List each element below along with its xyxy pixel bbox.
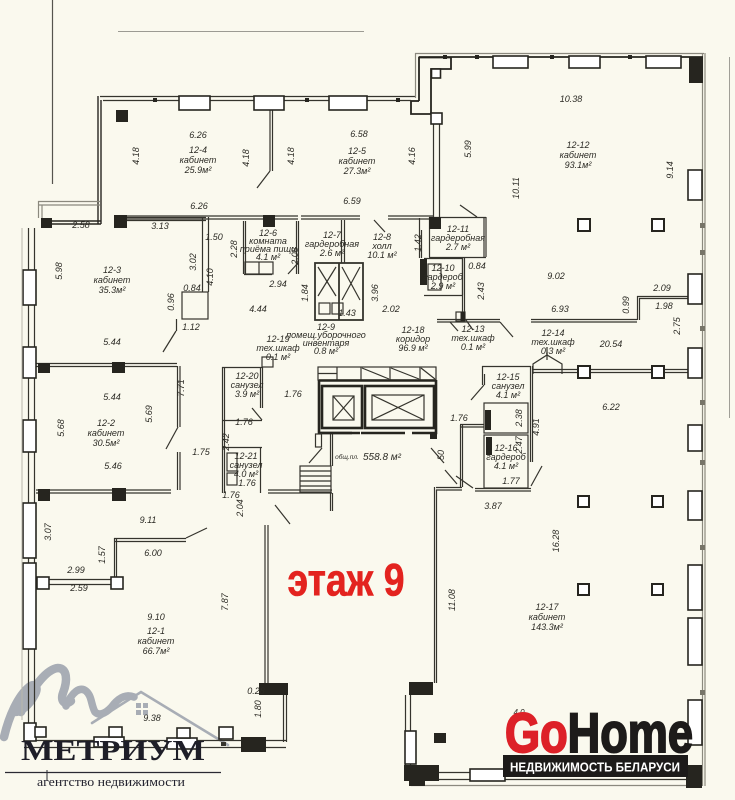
svg-text:5.69: 5.69 <box>144 405 154 423</box>
svg-text:12-3: 12-3 <box>103 265 121 275</box>
svg-text:2.38: 2.38 <box>514 409 524 428</box>
svg-text:кабинет: кабинет <box>138 636 175 646</box>
svg-text:6.58: 6.58 <box>350 129 368 139</box>
svg-text:93.1м²: 93.1м² <box>565 160 593 170</box>
svg-text:1.12: 1.12 <box>182 322 200 332</box>
svg-text:1.80: 1.80 <box>253 700 263 718</box>
svg-text:10.11: 10.11 <box>511 177 521 199</box>
svg-text:50: 50 <box>436 450 446 460</box>
svg-text:6.59: 6.59 <box>343 196 361 206</box>
svg-text:12-5: 12-5 <box>348 146 367 156</box>
svg-text:3.96: 3.96 <box>370 284 380 302</box>
svg-text:16.28: 16.28 <box>551 530 561 553</box>
svg-text:143.3м²: 143.3м² <box>531 622 564 632</box>
svg-text:2.28: 2.28 <box>229 240 239 259</box>
svg-text:5.68: 5.68 <box>56 419 66 437</box>
svg-text:НЕДВИЖИМОСТЬ БЕЛАРУСИ: НЕДВИЖИМОСТЬ БЕЛАРУСИ <box>510 761 680 775</box>
svg-text:12-2: 12-2 <box>97 418 115 428</box>
svg-text:2.47: 2.47 <box>514 435 524 455</box>
svg-text:4.91: 4.91 <box>531 418 541 436</box>
svg-text:2.02: 2.02 <box>381 304 400 314</box>
svg-text:0.84: 0.84 <box>468 261 486 271</box>
svg-text:10.38: 10.38 <box>560 94 583 104</box>
svg-text:27.3м²: 27.3м² <box>343 166 372 176</box>
svg-text:3.87: 3.87 <box>484 501 503 511</box>
svg-text:0.99: 0.99 <box>621 296 631 314</box>
svg-text:общ.пл.: общ.пл. <box>335 453 359 461</box>
svg-text:3.9 м²: 3.9 м² <box>235 389 260 399</box>
svg-text:6.22: 6.22 <box>602 402 620 412</box>
svg-text:9.38: 9.38 <box>143 713 161 723</box>
svg-text:12-1: 12-1 <box>147 626 165 636</box>
svg-text:МЕТРИУМ: МЕТРИУМ <box>21 735 205 767</box>
svg-text:6.00: 6.00 <box>144 548 162 558</box>
svg-text:0.3 м²: 0.3 м² <box>541 346 566 356</box>
svg-text:кабинет: кабинет <box>339 156 376 166</box>
svg-text:9.10: 9.10 <box>147 612 165 622</box>
svg-text:558.8 м²: 558.8 м² <box>363 452 402 463</box>
svg-text:агентство недвижимости: агентство недвижимости <box>37 774 185 789</box>
svg-text:2.59: 2.59 <box>69 583 88 593</box>
svg-text:7.71: 7.71 <box>176 379 186 397</box>
svg-text:12-17: 12-17 <box>535 602 559 612</box>
svg-text:2.94: 2.94 <box>268 279 287 289</box>
svg-text:0.1 м²: 0.1 м² <box>266 352 291 362</box>
svg-text:4.44: 4.44 <box>249 304 267 314</box>
svg-text:9.11: 9.11 <box>140 515 157 525</box>
svg-text:30.5м²: 30.5м² <box>93 438 121 448</box>
svg-text:9.02: 9.02 <box>547 271 565 281</box>
svg-text:25.9м²: 25.9м² <box>184 165 213 175</box>
svg-text:5.98: 5.98 <box>54 262 64 280</box>
svg-text:6.26: 6.26 <box>190 201 208 211</box>
svg-text:4.18: 4.18 <box>131 147 141 165</box>
svg-text:кабинет: кабинет <box>560 150 597 160</box>
svg-text:5.99: 5.99 <box>463 140 473 158</box>
svg-text:4.1 м²: 4.1 м² <box>256 252 281 262</box>
svg-text:5.44: 5.44 <box>103 392 121 402</box>
svg-text:1.57: 1.57 <box>97 545 107 564</box>
svg-text:4.1 м²: 4.1 м² <box>494 461 519 471</box>
svg-text:4.1 м²: 4.1 м² <box>496 390 521 400</box>
svg-text:2.08: 2.08 <box>290 247 300 266</box>
svg-text:GoHome: GoHome <box>505 701 693 764</box>
svg-text:1.98: 1.98 <box>655 301 673 311</box>
svg-text:2.7 м²: 2.7 м² <box>445 242 471 252</box>
svg-text:12-12: 12-12 <box>566 140 589 150</box>
svg-text:4.18: 4.18 <box>286 147 296 165</box>
svg-text:кабинет: кабинет <box>88 428 125 438</box>
svg-text:2.75: 2.75 <box>672 316 682 336</box>
svg-text:1.76: 1.76 <box>284 389 302 399</box>
svg-text:2.09: 2.09 <box>652 283 671 293</box>
svg-text:1.77: 1.77 <box>502 476 521 486</box>
svg-text:кабинет: кабинет <box>529 612 566 622</box>
svg-text:2.99: 2.99 <box>66 565 85 575</box>
svg-text:2.42: 2.42 <box>221 433 231 452</box>
svg-text:7.87: 7.87 <box>220 592 230 611</box>
svg-text:1.76: 1.76 <box>450 413 468 423</box>
svg-text:1.43: 1.43 <box>338 308 356 318</box>
svg-text:1.42: 1.42 <box>413 234 423 252</box>
svg-text:9.14: 9.14 <box>665 161 675 179</box>
svg-text:6.26: 6.26 <box>189 130 207 140</box>
svg-text:1.75: 1.75 <box>192 447 211 457</box>
svg-text:0.28: 0.28 <box>247 686 265 696</box>
svg-text:0.84: 0.84 <box>183 283 201 293</box>
svg-text:4.18: 4.18 <box>241 149 251 167</box>
svg-text:2.43: 2.43 <box>476 282 486 301</box>
svg-text:20.54: 20.54 <box>599 339 623 349</box>
svg-text:3.07: 3.07 <box>43 522 53 541</box>
svg-text:66.7м²: 66.7м² <box>143 646 171 656</box>
svg-text:1.50: 1.50 <box>205 232 223 242</box>
svg-text:2.9 м²: 2.9 м² <box>430 281 456 291</box>
svg-text:1.84: 1.84 <box>300 284 310 302</box>
svg-text:1.76: 1.76 <box>222 490 240 500</box>
svg-text:этаж 9: этаж 9 <box>288 555 405 606</box>
svg-text:12-4: 12-4 <box>189 145 207 155</box>
svg-text:4.16: 4.16 <box>407 147 417 165</box>
svg-text:2.6 м²: 2.6 м² <box>319 248 345 258</box>
svg-text:5.46: 5.46 <box>104 461 122 471</box>
svg-text:5.44: 5.44 <box>103 337 121 347</box>
svg-text:кабинет: кабинет <box>94 275 131 285</box>
svg-text:6.93: 6.93 <box>551 304 569 314</box>
svg-text:2.04: 2.04 <box>235 499 245 518</box>
svg-text:4.10: 4.10 <box>205 268 215 286</box>
svg-text:1.76: 1.76 <box>238 478 256 488</box>
svg-text:кабинет: кабинет <box>180 155 217 165</box>
svg-text:96.9 м²: 96.9 м² <box>398 343 428 353</box>
svg-text:11.08: 11.08 <box>447 589 457 611</box>
svg-text:0.8 м²: 0.8 м² <box>314 346 339 356</box>
svg-text:3.13: 3.13 <box>151 221 169 231</box>
svg-text:35.3м²: 35.3м² <box>99 285 127 295</box>
svg-text:3.02: 3.02 <box>188 253 198 271</box>
svg-text:10.1 м²: 10.1 м² <box>367 250 397 260</box>
svg-text:0.96: 0.96 <box>166 293 176 311</box>
svg-text:1.76: 1.76 <box>235 417 253 427</box>
svg-text:0.1 м²: 0.1 м² <box>461 342 486 352</box>
svg-text:2.58: 2.58 <box>71 220 90 230</box>
